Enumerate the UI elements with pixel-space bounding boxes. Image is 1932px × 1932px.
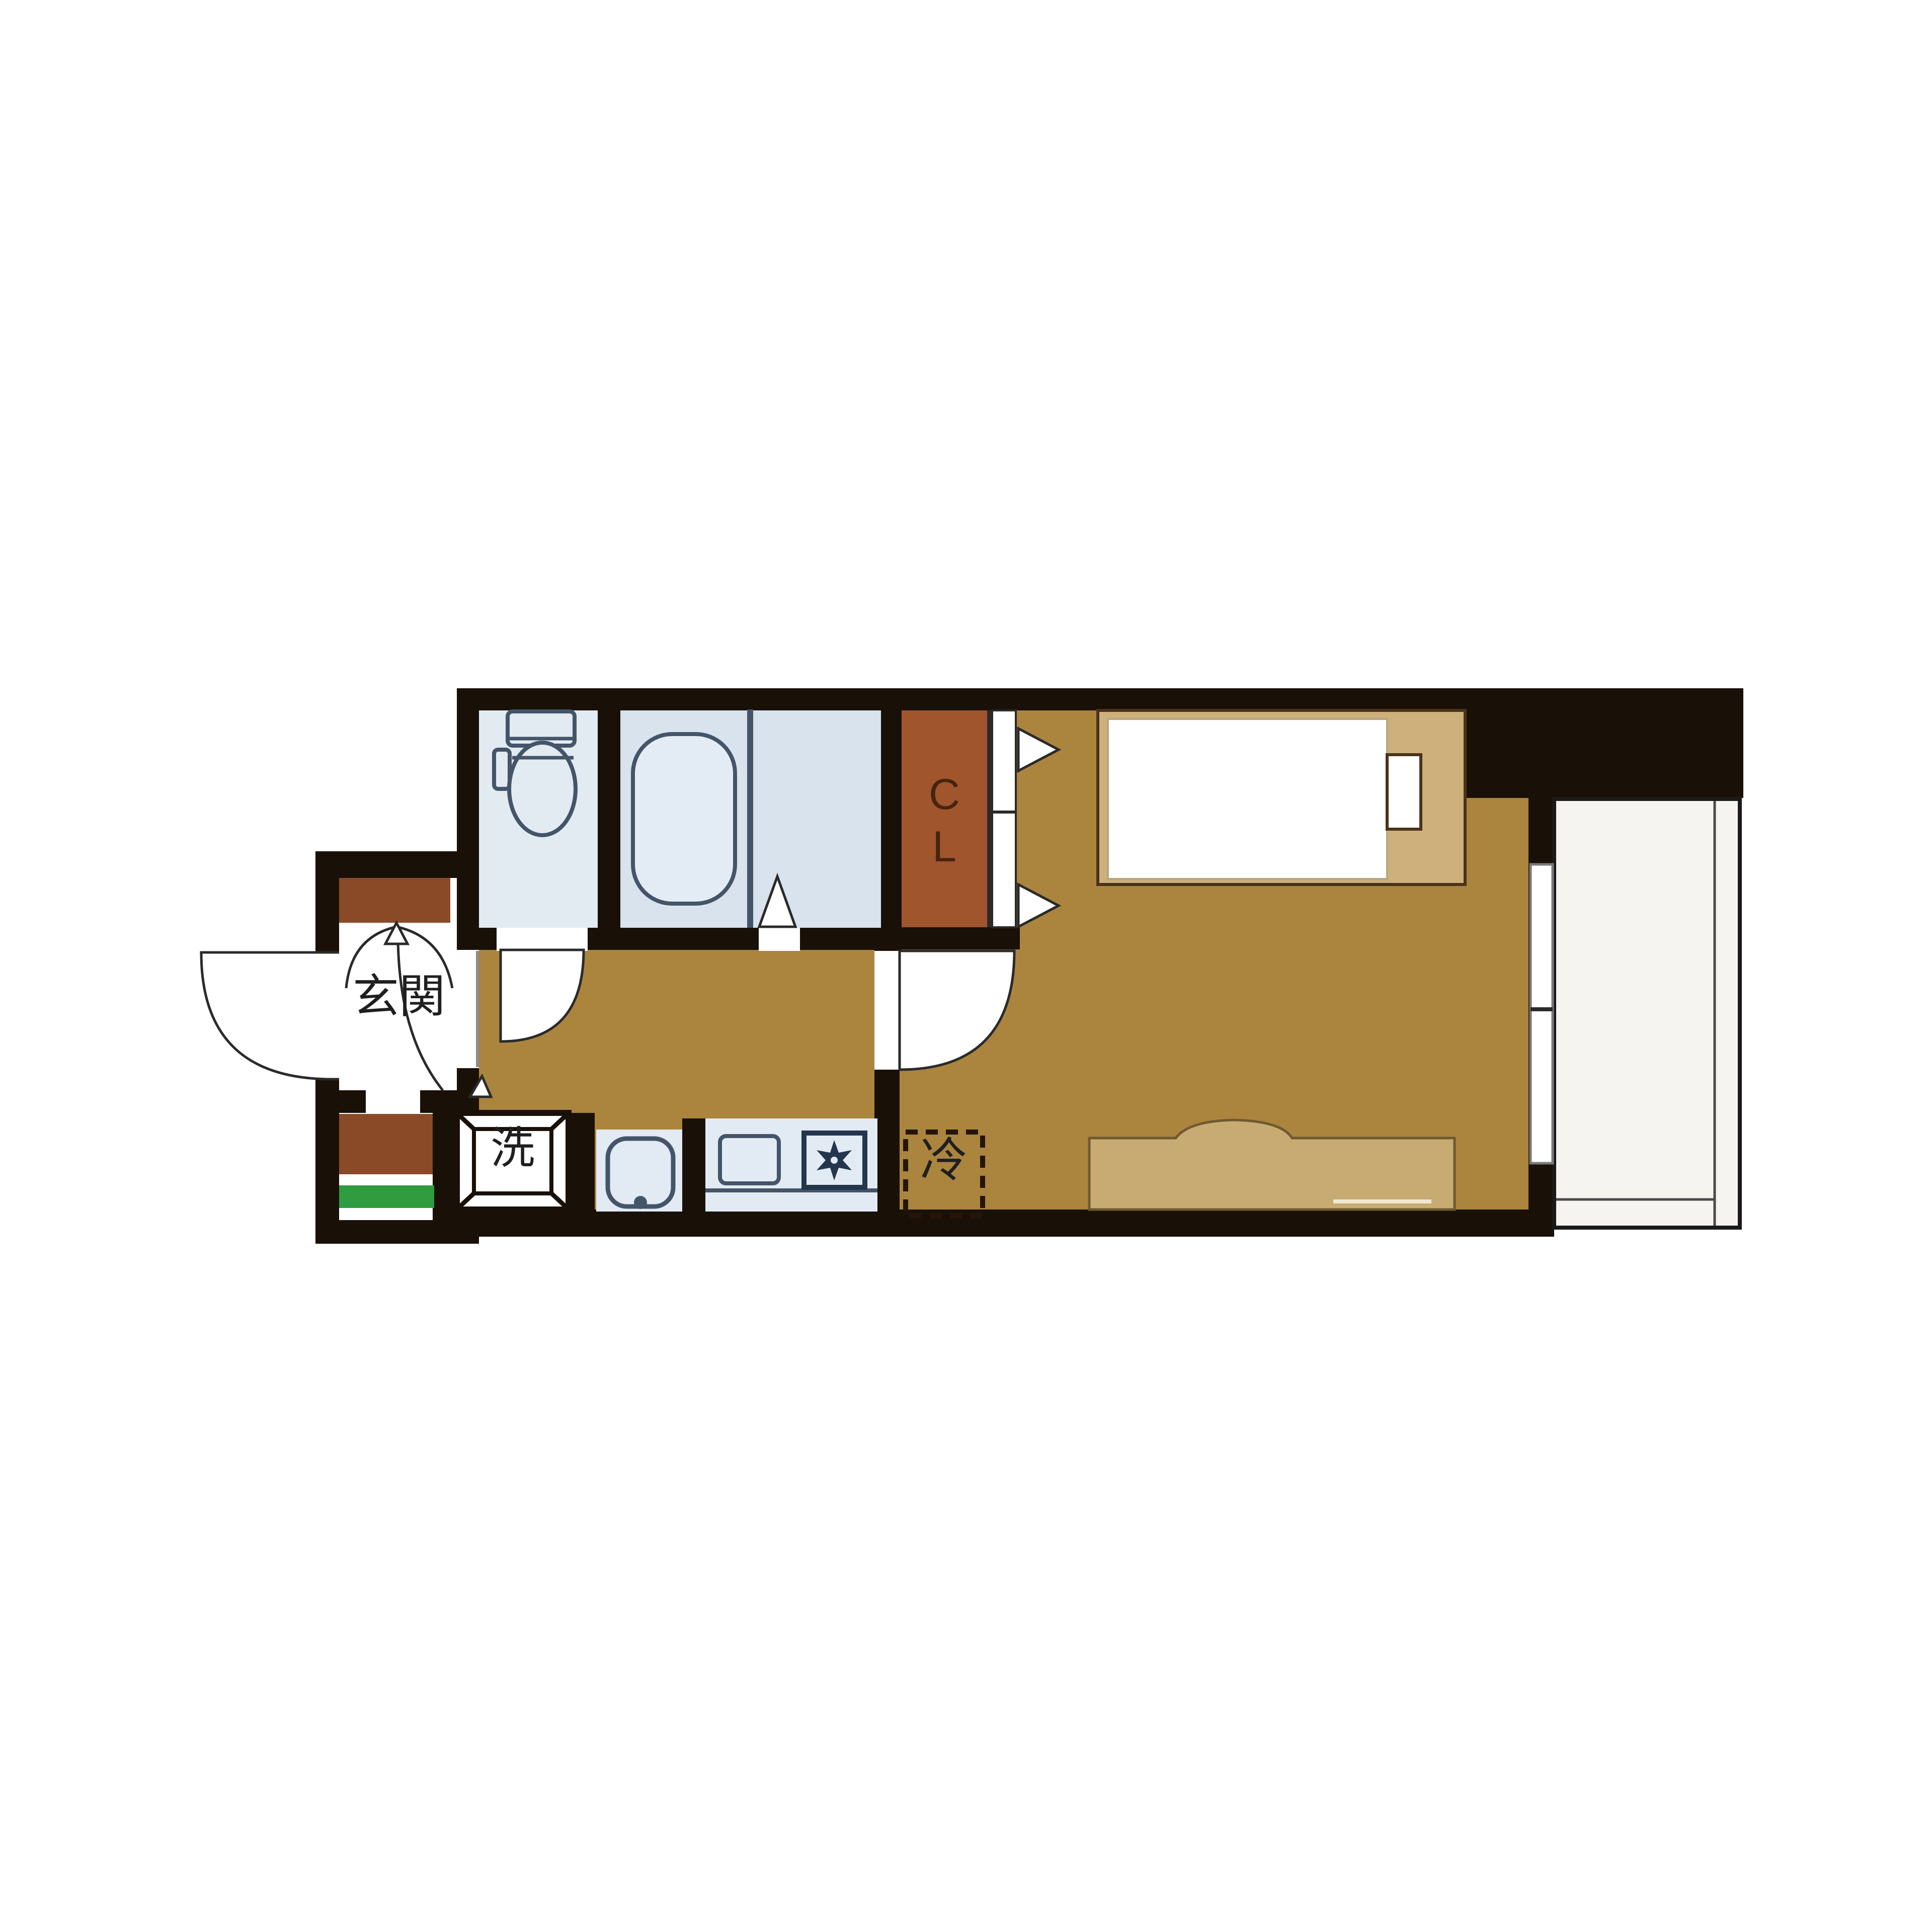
wall-washer-left: [433, 1113, 457, 1222]
wall-unit-left: [457, 688, 479, 950]
wall-block-top-right: [1465, 688, 1743, 798]
balcony: [1554, 799, 1740, 1228]
washer-label: 洗: [491, 1123, 535, 1173]
wall-bath-closet: [881, 688, 902, 950]
bed-mattress: [1108, 719, 1387, 879]
toilet-handle: [494, 750, 510, 789]
wall-washer-right: [569, 1113, 595, 1210]
balcony-area: [1531, 799, 1740, 1228]
genkan-step-opening: [457, 950, 479, 1068]
cabinet-sliver: [450, 878, 457, 927]
wall-annex-top: [315, 851, 479, 878]
bed-pillow: [1387, 755, 1421, 829]
sliding-window: [1531, 864, 1553, 1163]
vanity-faucet-dot: [634, 1196, 647, 1209]
wall-toilet-bath-divider: [598, 688, 620, 950]
shoe-cabinet-bottom: [339, 1114, 433, 1174]
wall-bottom: [457, 1210, 1554, 1237]
entrance-label: 玄関: [353, 971, 445, 1022]
toilet-tank: [508, 711, 575, 746]
bath-door-opening: [759, 928, 800, 951]
toilet-door-opening: [497, 928, 588, 951]
fridge-label: 冷: [920, 1134, 968, 1186]
floorplan-page: { "plan": { "type": "apartment-floorplan…: [0, 0, 1932, 1932]
closet-label-l: L: [932, 823, 956, 871]
floorplan-svg: 玄関 C L: [0, 0, 1932, 1932]
bathtub: [633, 734, 735, 904]
wall-closet-bottom: [881, 927, 1020, 949]
main-door-opening: [874, 951, 900, 1070]
closet-folding-door: [992, 710, 1016, 927]
stove-burner-center: [831, 1157, 838, 1164]
entry-door-swing: [201, 952, 339, 1079]
wall-annex-bottom: [315, 1220, 479, 1244]
shoe-cabinet-top: [339, 878, 450, 923]
wall-vanity-kitchen: [682, 1118, 705, 1210]
closet-label-c: C: [929, 770, 960, 819]
annex-mid-gap: [366, 1090, 420, 1113]
closet-floor: [902, 710, 987, 927]
entrance-mat: [339, 1185, 434, 1208]
